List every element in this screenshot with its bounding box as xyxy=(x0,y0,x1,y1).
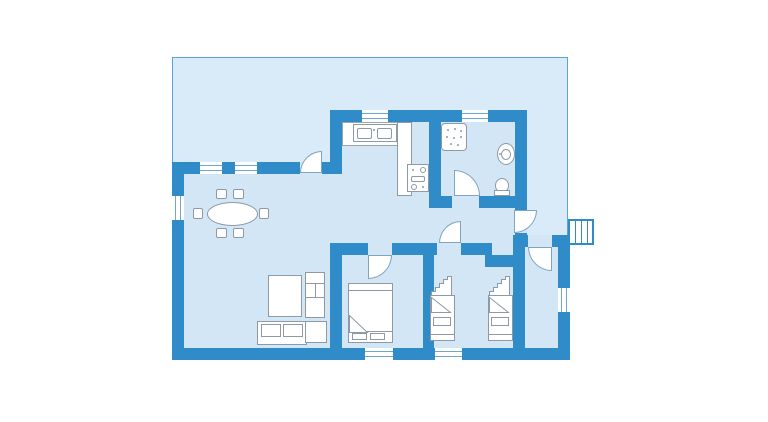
sofa-cushion xyxy=(283,324,303,337)
window-living-1 xyxy=(200,162,222,174)
knob-icon xyxy=(412,169,414,171)
shelf-line xyxy=(315,283,316,297)
wall xyxy=(172,220,184,360)
oven-icon xyxy=(411,176,425,182)
bunk-ladder-icon xyxy=(431,276,452,296)
pillow xyxy=(491,317,509,326)
dining-chair xyxy=(233,228,244,238)
wall xyxy=(429,196,452,208)
window-bathroom xyxy=(462,110,488,122)
wall xyxy=(322,162,342,174)
wall-unit xyxy=(305,272,325,318)
wall xyxy=(515,110,527,210)
washbasin xyxy=(497,143,515,165)
shelf-line xyxy=(306,297,324,298)
dining-chair xyxy=(216,228,227,238)
wall xyxy=(479,196,527,208)
doorway-entry-room xyxy=(528,235,552,247)
room-hallway-nook xyxy=(492,243,513,255)
sofa-cushion xyxy=(261,324,281,337)
window-bedroom-singles xyxy=(435,348,462,360)
wall xyxy=(558,247,570,288)
toilet-tank xyxy=(494,190,510,196)
stove xyxy=(407,164,429,192)
wall xyxy=(330,243,342,360)
bed-line xyxy=(431,334,454,335)
dining-chair xyxy=(233,189,244,199)
double-bed xyxy=(348,283,393,343)
bed-line xyxy=(349,290,392,291)
wall xyxy=(257,162,300,174)
wall xyxy=(388,110,462,122)
sink-basin xyxy=(357,128,372,139)
window-kitchen xyxy=(362,110,388,122)
wall xyxy=(558,312,570,360)
duvet-fold-icon xyxy=(349,315,368,333)
side-table xyxy=(305,321,327,343)
wall xyxy=(485,243,492,267)
doorway-bedroom-double xyxy=(368,243,392,255)
pillow xyxy=(370,333,385,340)
floor-plan xyxy=(0,0,768,422)
sink-basin xyxy=(377,128,392,139)
knob-icon xyxy=(422,186,424,188)
entrance-steps xyxy=(568,219,594,245)
window-living-left xyxy=(172,196,184,220)
doorway-bathroom xyxy=(452,196,479,208)
shower xyxy=(441,123,467,151)
wall xyxy=(513,247,525,360)
dining-table xyxy=(207,202,258,226)
dining-chair xyxy=(259,208,269,219)
wall xyxy=(492,255,513,267)
basin-icon xyxy=(501,149,511,160)
wall xyxy=(222,162,235,174)
wall xyxy=(429,110,441,208)
living-table xyxy=(268,275,302,317)
shower-spray-icon xyxy=(447,129,449,131)
duvet-fold-icon xyxy=(489,297,509,313)
dining-chair xyxy=(193,208,203,219)
room-living-passage xyxy=(330,174,342,243)
wall xyxy=(513,235,528,247)
burner-icon xyxy=(420,167,426,173)
doorway-bedroom-singles xyxy=(437,243,461,255)
pillow xyxy=(352,333,367,340)
window-living-2 xyxy=(235,162,257,174)
dining-chair xyxy=(216,189,227,199)
bunk-ladder-icon xyxy=(489,276,510,296)
wall xyxy=(172,162,184,196)
burner-icon xyxy=(411,184,417,190)
tap-icon xyxy=(499,153,501,155)
bed-line xyxy=(489,334,512,335)
pillow xyxy=(433,317,451,326)
duvet-fold-icon xyxy=(431,297,451,313)
faucet-icon xyxy=(373,129,375,131)
sofa xyxy=(257,321,307,345)
window-bedroom-double xyxy=(365,348,393,360)
kitchen-sink xyxy=(353,124,397,142)
window-entry xyxy=(558,288,570,312)
